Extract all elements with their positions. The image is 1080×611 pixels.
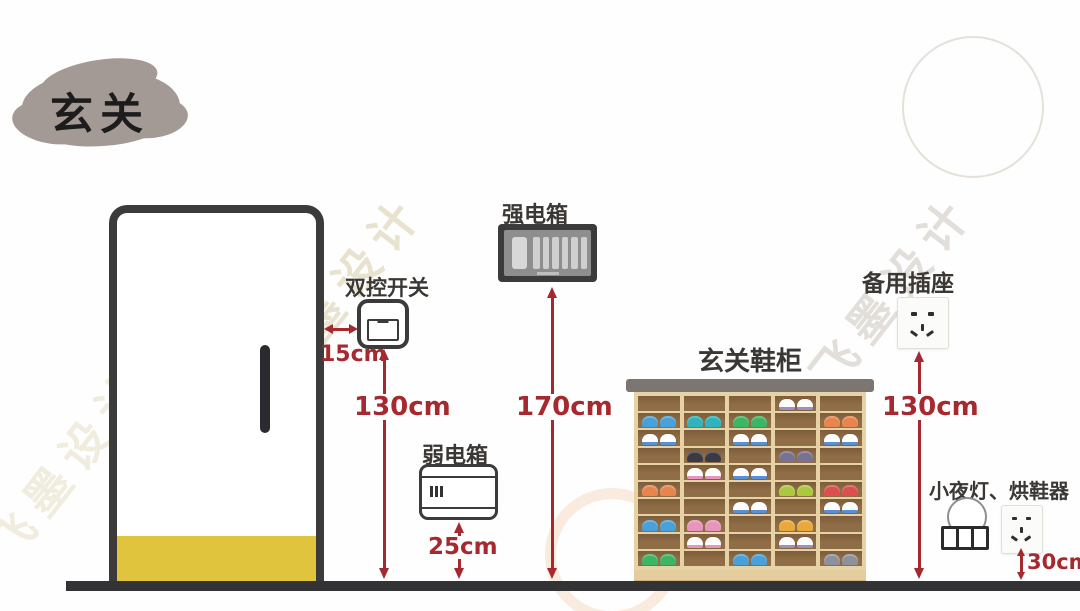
cabinet-cell [638,396,680,411]
shoe-pair [775,520,817,531]
cabinet-cell [820,551,862,566]
cabinet-cell [820,465,862,480]
height-arrow-30cm [1016,548,1027,580]
shoe-pair [820,416,862,427]
shoe-pair [638,520,680,531]
floor-line [66,581,1080,591]
cabinet-cell [684,430,726,445]
main-breaker [512,237,527,269]
cabinet-cell [684,499,726,514]
shoe-pair [638,554,680,565]
cabinet-cell [684,551,726,566]
shoe-pair [638,485,680,496]
page-title: 玄关 [50,80,150,142]
breaker-panel-face [504,230,591,276]
switch-rocker [367,319,399,341]
dimension-30cm: 30cm [1027,552,1080,573]
cabinet-cell [638,448,680,463]
shoe-pair [820,485,862,496]
cabinet-cell [820,430,862,445]
cabinet-cell [684,482,726,497]
height-arrow-strong-box [547,287,558,579]
shoe-pair [820,434,862,445]
cabinet-cell [684,396,726,411]
cabinet-cell [729,534,771,549]
cabinet-cell [638,413,680,428]
dimension-130cm-socket: 130cm [879,394,982,420]
shoe-pair [638,434,680,445]
shoe-cabinet-grid [634,392,866,570]
panel-line [422,476,495,478]
cabinet-cell [729,396,771,411]
cabinet-cell [820,482,862,497]
cabinet-cell [684,413,726,428]
light-bulb-base [941,526,989,550]
media-panel-icon [419,464,498,520]
shoe-pair [729,554,771,565]
shoe-pair [775,399,817,410]
cabinet-cell [775,516,817,531]
cabinet-cell [775,396,817,411]
cabinet-cell [729,551,771,566]
night-socket-icon [1001,505,1043,554]
shoe-pair [820,554,862,565]
offset-arrow-15cm [324,324,358,335]
dimension-170cm: 170cm [513,394,616,420]
height-arrow-switch [379,349,390,579]
cabinet-cell [775,482,817,497]
dimension-25cm: 25cm [425,536,501,559]
height-arrow-spare-socket [914,351,925,579]
watermark-logo-ring [902,36,1044,178]
cabinet-cell [729,413,771,428]
door-mat [117,536,316,583]
cabinet-cell [820,499,862,514]
cabinet-cell [684,448,726,463]
panel-line [422,507,495,509]
spare-socket-label: 备用插座 [862,264,954,298]
switch-label: 双控开关 [345,272,429,302]
shoe-pair [684,520,726,531]
cabinet-cell [820,448,862,463]
cabinet-cell [684,465,726,480]
cabinet-cell [775,499,817,514]
cabinet-cell [684,534,726,549]
cabinet-cell [775,465,817,480]
door-handle [260,345,270,433]
cabinet-cell [729,448,771,463]
barcode-marks [430,486,443,497]
cabinet-cell [729,482,771,497]
shoe-pair [729,468,771,479]
cabinet-cell [775,413,817,428]
cabinet-cell [775,551,817,566]
cabinet-cell [638,534,680,549]
shoe-pair [638,416,680,427]
shoe-pair [684,468,726,479]
shoe-pair [775,537,817,548]
cabinet-cell [820,413,862,428]
cabinet-cell [638,516,680,531]
dimension-15cm: 15cm [320,344,387,366]
shoe-pair [729,502,771,513]
cabinet-cell [638,499,680,514]
cabinet-cell [820,534,862,549]
cabinet-cell [775,448,817,463]
cabinet-cell [638,551,680,566]
dimension-130cm-switch: 130cm [351,394,454,420]
cabinet-cell [729,499,771,514]
shoe-pair [729,434,771,445]
breaker-panel-icon [498,224,597,282]
cabinet-cell [638,430,680,445]
cabinet-label: 玄关鞋柜 [698,341,802,378]
entryway-layout-diagram: 飞墨设计 飞墨设计 飞墨设计 玄关 双控开关 15cm 130cm 强电箱 [0,0,1080,611]
cabinet-cell [729,516,771,531]
cabinet-cell [775,534,817,549]
cabinet-cell [820,516,862,531]
cabinet-cell [638,465,680,480]
cabinet-cell [684,516,726,531]
shoe-pair [684,537,726,548]
cabinet-cell [775,430,817,445]
night-light-label: 小夜灯、烘鞋器 [929,475,1069,504]
cabinet-cell [820,396,862,411]
cabinet-cell [729,465,771,480]
entry-door [109,205,324,583]
cabinet-top-board [626,379,874,392]
shoe-pair [775,451,817,462]
switch-notch [378,320,389,323]
cabinet-cell [638,482,680,497]
panel-foot [537,272,559,275]
shoe-pair [684,416,726,427]
breaker-switches [533,237,587,269]
shoe-pair [729,416,771,427]
shoe-pair [775,485,817,496]
spare-socket-icon [897,297,949,349]
shoe-pair [684,451,726,462]
shoe-pair [820,502,862,513]
cabinet-cell [729,430,771,445]
